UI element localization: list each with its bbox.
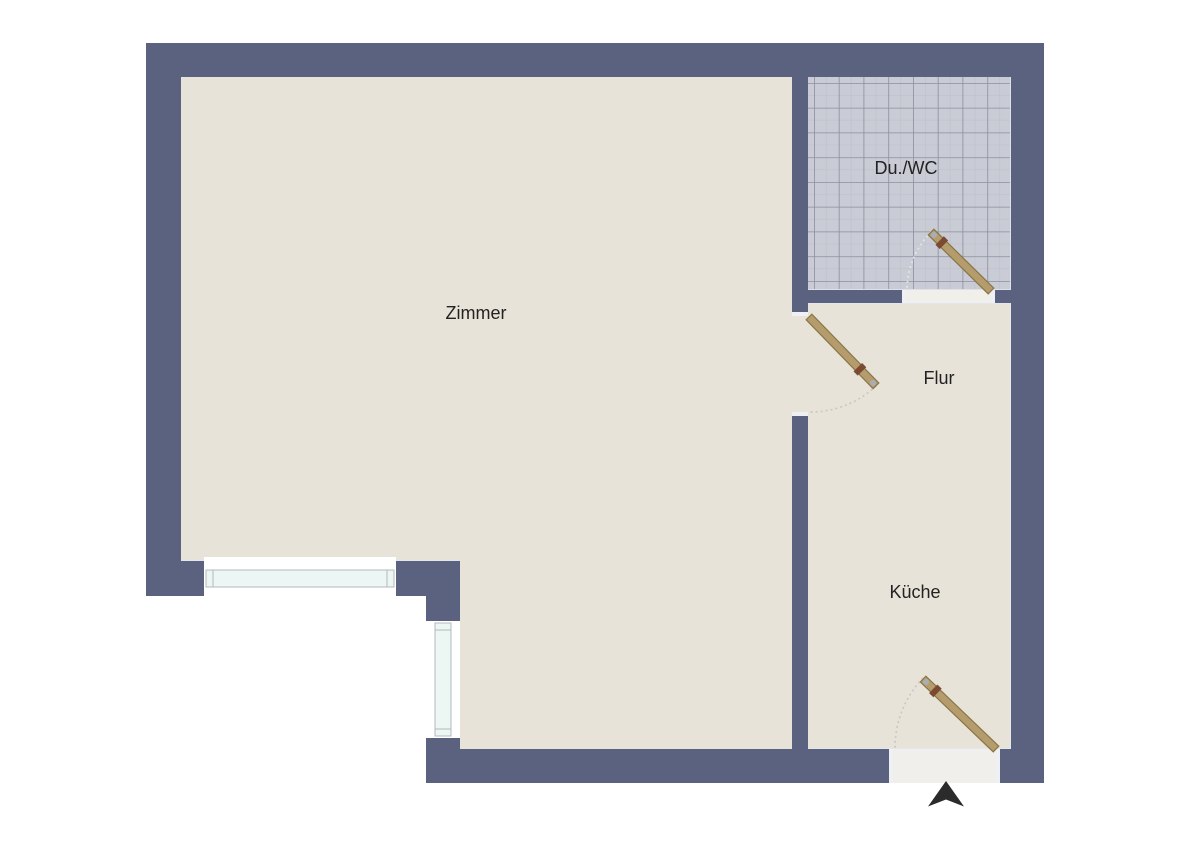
svg-text:Du./WC: Du./WC [875,158,938,178]
svg-text:Zimmer: Zimmer [446,303,507,323]
svg-text:Flur: Flur [924,368,955,388]
svg-text:Küche: Küche [889,582,940,602]
